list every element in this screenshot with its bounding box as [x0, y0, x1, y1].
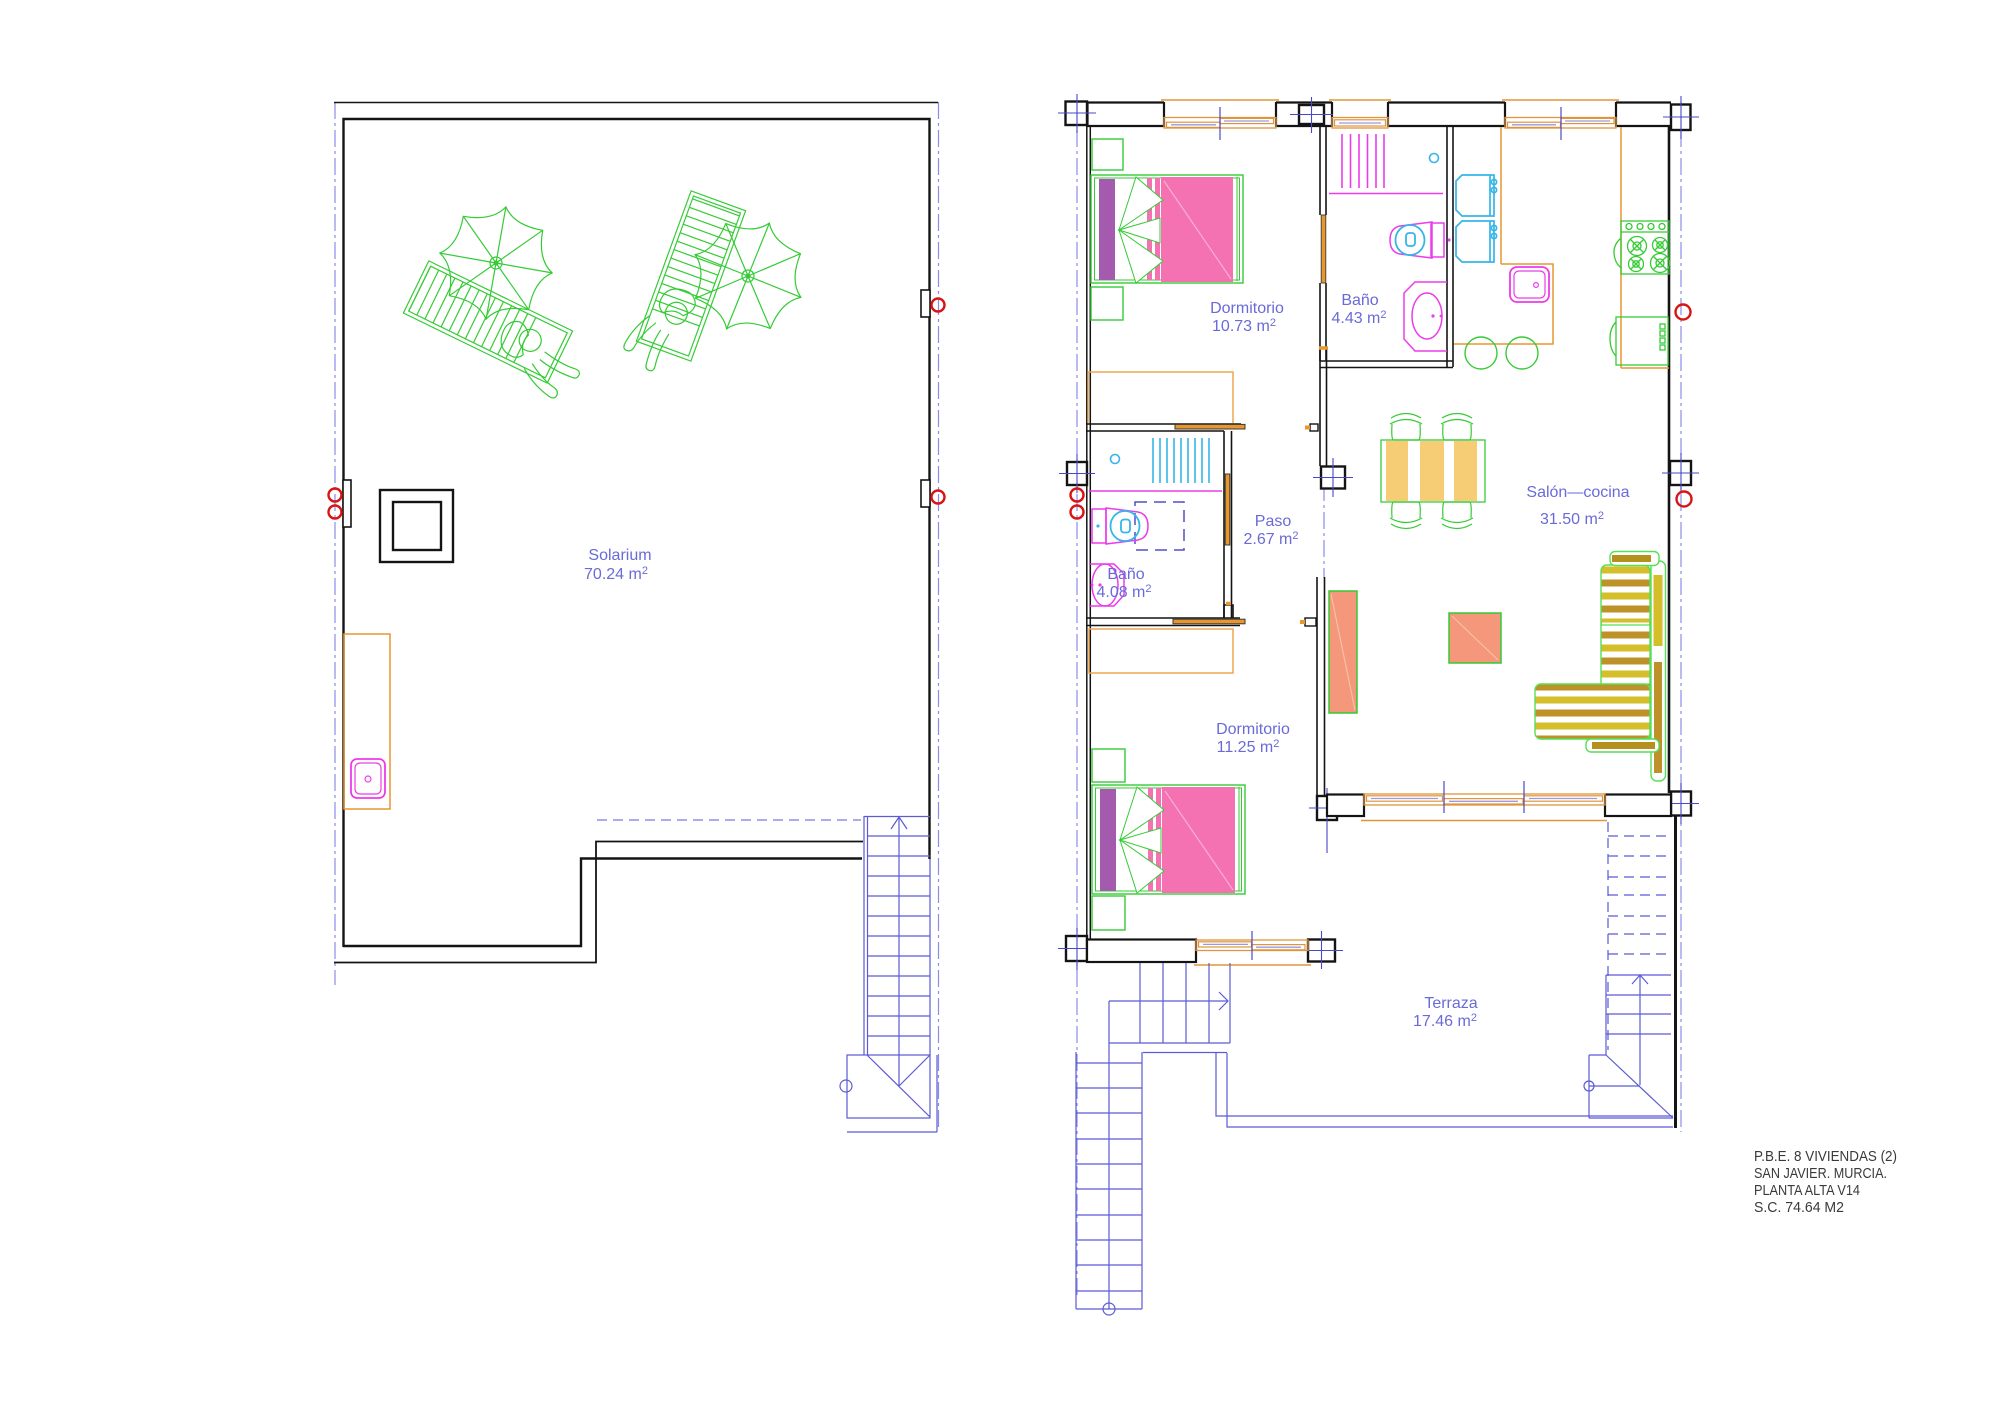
svg-text:4.43 m2: 4.43 m2 [1331, 309, 1386, 327]
svg-text:Dormitorio: Dormitorio [1210, 300, 1284, 317]
svg-text:Terraza: Terraza [1424, 995, 1477, 1012]
svg-text:S.C. 74.64 M2: S.C. 74.64 M2 [1754, 1199, 1844, 1216]
svg-text:Dormitorio: Dormitorio [1216, 721, 1290, 738]
svg-text:31.50 m2: 31.50 m2 [1540, 510, 1604, 528]
svg-text:Baño: Baño [1107, 566, 1144, 583]
svg-text:Baño: Baño [1341, 292, 1378, 309]
svg-text:PLANTA ALTA V14: PLANTA ALTA V14 [1754, 1182, 1860, 1199]
svg-text:4.08 m2: 4.08 m2 [1096, 583, 1151, 601]
svg-text:P.B.E. 8 VIVIENDAS (2): P.B.E. 8 VIVIENDAS (2) [1754, 1148, 1897, 1165]
svg-text:Salón—cocina: Salón—cocina [1526, 484, 1629, 501]
svg-text:70.24 m2: 70.24 m2 [584, 565, 648, 583]
svg-text:10.73 m2: 10.73 m2 [1212, 317, 1276, 335]
svg-text:Paso: Paso [1255, 513, 1292, 530]
svg-text:Solarium: Solarium [588, 547, 651, 564]
svg-text:SAN JAVIER. MURCIA.: SAN JAVIER. MURCIA. [1754, 1165, 1887, 1182]
svg-text:2.67 m2: 2.67 m2 [1243, 530, 1298, 548]
svg-text:17.46 m2: 17.46 m2 [1413, 1012, 1477, 1030]
svg-text:11.25 m2: 11.25 m2 [1217, 738, 1280, 756]
